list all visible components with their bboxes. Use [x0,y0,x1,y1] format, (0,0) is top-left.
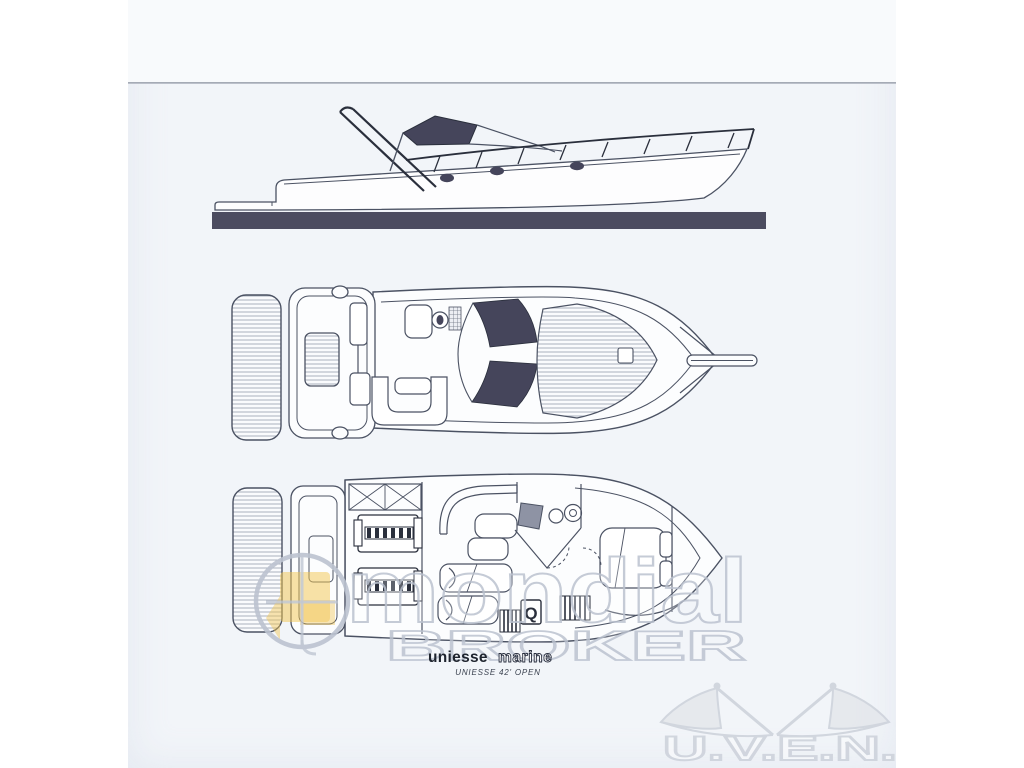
model-label: UNIESSE 42' OPEN [455,668,540,677]
brand-caption: uniesse marine UNIESSE 42' OPEN [408,648,588,680]
appliance-label: Q [524,604,537,623]
main-deck-plan-drawing [225,282,785,447]
uven-corner-logo: U.V.E.N. [655,678,905,768]
bimini-top [390,116,562,171]
transom-module [291,486,345,634]
lower-deck-plan-drawing: Q [225,470,785,655]
hull-outline [215,149,747,210]
appliance-box: Q [521,600,541,624]
waterline-bar [212,212,766,229]
header-divider-line [128,82,896,84]
swim-platform [233,488,282,632]
brand-name-primary: uniesse [428,649,488,666]
scanned-brochure-page: { "brand": { "name_primary": "uniesse", … [0,0,1024,768]
page-header-area [128,0,896,82]
bow-pulpit [680,327,757,393]
engine-starboard [354,568,422,605]
swim-platform [232,295,281,440]
engine-port [354,515,422,552]
brand-name-secondary: marine [498,649,552,666]
corner-logo-text: U.V.E.N. [663,730,897,768]
brochure-page: Q mondial BROKER uniesse marine UNIES [128,0,896,768]
yacht-profile-drawing [210,88,770,238]
crossed-flags-icon [661,683,889,737]
